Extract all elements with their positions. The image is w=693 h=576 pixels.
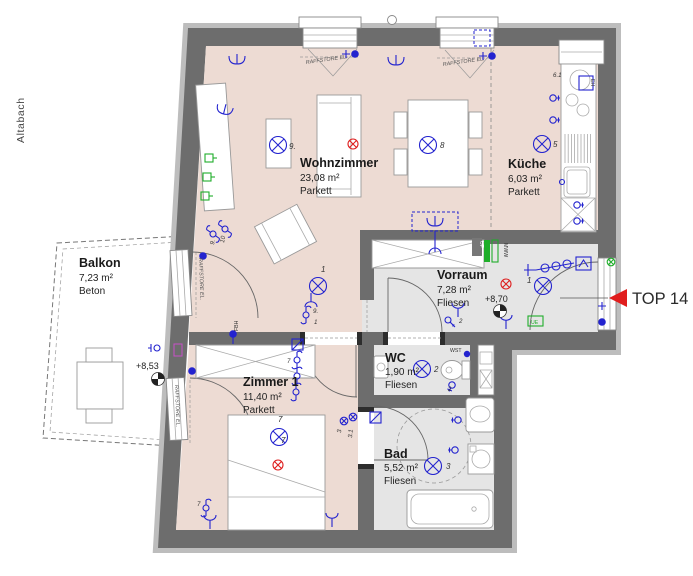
- motor-connection-dot: [598, 318, 606, 326]
- window-kueche: [559, 40, 604, 64]
- toilet-cistern: [462, 361, 470, 379]
- svg-text:5,52 m²: 5,52 m²: [384, 463, 419, 474]
- circuit-number: 2: [447, 386, 452, 393]
- chair: [394, 149, 407, 175]
- svg-text:Parkett: Parkett: [243, 405, 275, 416]
- svg-text:Fliesen: Fliesen: [385, 380, 417, 391]
- wall-zimmer1-bad: [358, 466, 374, 530]
- circuit-number: 3: [446, 462, 451, 471]
- circuit-number: 7: [197, 501, 201, 508]
- svg-text:Parkett: Parkett: [508, 187, 540, 198]
- chair: [469, 149, 482, 175]
- window: [303, 28, 357, 48]
- floorplan-canvas: Altabach TOP 14 Balkon 7,23 m² Beton +8,…: [0, 0, 693, 576]
- circuit-number: 3.1: [347, 429, 355, 438]
- bed: [228, 415, 325, 530]
- svg-text:1,90 m²: 1,90 m²: [385, 367, 420, 378]
- balcony-table: [77, 362, 123, 409]
- ue-label: UE: [531, 320, 539, 326]
- svg-text:Vorraum: Vorraum: [437, 268, 487, 282]
- fbh-label: FBH: [234, 320, 240, 331]
- eh-label: EH: [589, 79, 595, 86]
- balcony-door-wohnzimmer: [170, 250, 192, 317]
- unit-label: TOP 14: [632, 290, 688, 308]
- svg-text:Wohnzimmer: Wohnzimmer: [300, 156, 378, 170]
- svg-text:Fliesen: Fliesen: [384, 476, 416, 487]
- wall-vorraum-wc: [442, 332, 494, 345]
- circuit-number: 6.1: [553, 72, 562, 79]
- svg-text:6,03 m²: 6,03 m²: [508, 174, 543, 185]
- window-sill: [299, 17, 361, 28]
- svg-text:Balkon: Balkon: [79, 256, 121, 270]
- level-text: +8,53: [136, 361, 159, 371]
- floorplan-drawing: Altabach TOP 14 Balkon 7,23 m² Beton +8,…: [0, 0, 693, 576]
- level-marker: [152, 373, 165, 386]
- door-jamb: [358, 407, 374, 412]
- svg-text:7,28 m²: 7,28 m²: [437, 285, 472, 296]
- svg-text:Parkett: Parkett: [300, 186, 332, 197]
- up-label: UP: [478, 241, 484, 249]
- circuit-number: 8: [440, 141, 445, 150]
- svg-text:23,08 m²: 23,08 m²: [300, 173, 340, 184]
- wst-dot: [464, 351, 470, 357]
- balcony-chair: [86, 348, 112, 362]
- circuit-number: 9.: [313, 308, 318, 315]
- door-jamb: [383, 332, 388, 345]
- circuit-number: 1: [321, 265, 325, 274]
- level-marker: [494, 305, 507, 318]
- chair: [469, 112, 482, 138]
- door-jamb: [440, 332, 445, 345]
- motor-connection-dot: [351, 50, 359, 58]
- circuit-number: 2: [433, 365, 439, 374]
- circuit-number: 7: [278, 415, 283, 424]
- wall-wc-shaft: [470, 345, 478, 395]
- wall-wohnzimmer-zimmer1: [189, 332, 305, 345]
- circuit-number: 7: [281, 436, 286, 445]
- circuit-number: 2: [458, 318, 463, 325]
- balcony-chair: [86, 409, 112, 423]
- svg-text:Zimmer 1: Zimmer 1: [243, 375, 299, 389]
- survey-point: [388, 16, 397, 25]
- svg-text:11,40 m²: 11,40 m²: [243, 392, 282, 403]
- window-sill: [436, 17, 498, 28]
- svg-text:Bad: Bad: [384, 447, 408, 461]
- door-jamb: [358, 464, 374, 469]
- street-label: Altabach: [15, 97, 27, 143]
- motor-connection-dot: [188, 367, 196, 375]
- chair: [394, 112, 407, 138]
- window: [440, 28, 494, 48]
- svg-text:7,23 m²: 7,23 m²: [79, 273, 114, 284]
- circuit-number: 5: [553, 140, 558, 149]
- mww-label: MWW: [502, 243, 508, 257]
- svg-text:Küche: Küche: [508, 157, 546, 171]
- circuit-number: 9.: [289, 142, 296, 151]
- level-text: +8,70: [485, 294, 508, 304]
- circuit-number: 7: [287, 358, 291, 365]
- wall-zimmer1-bad: [358, 345, 374, 412]
- svg-text:WC: WC: [385, 351, 406, 365]
- table: [408, 100, 468, 187]
- circuit-number: 1: [314, 319, 317, 326]
- bathtub: [407, 490, 493, 528]
- svg-text:Beton: Beton: [79, 286, 105, 297]
- motor-connection-dot: [488, 52, 496, 60]
- door-jamb: [357, 332, 362, 345]
- circuit-number: 1: [527, 276, 531, 285]
- wst-label: WST: [450, 348, 462, 354]
- svg-text:Fliesen: Fliesen: [437, 298, 469, 309]
